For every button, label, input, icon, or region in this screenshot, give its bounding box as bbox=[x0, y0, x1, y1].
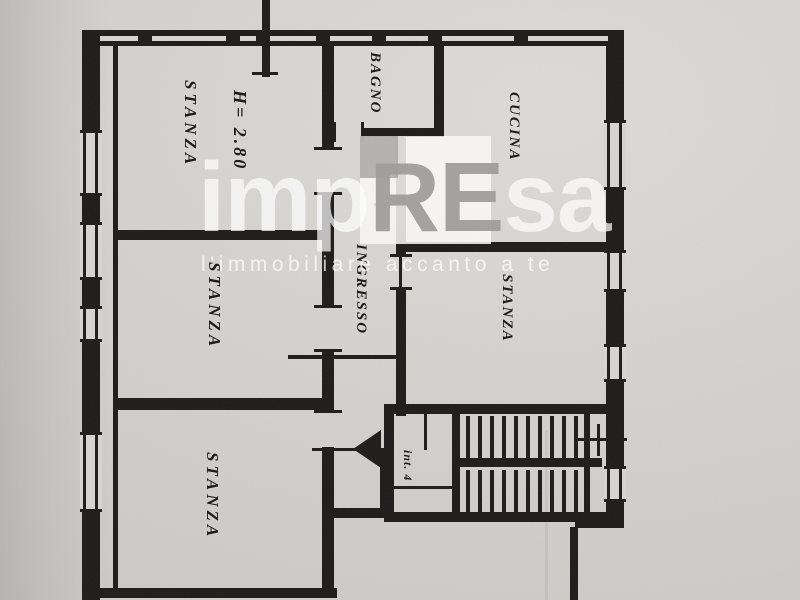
plan-line bbox=[80, 277, 102, 280]
plan-line bbox=[95, 225, 98, 277]
plan-line bbox=[514, 470, 518, 512]
plan-line bbox=[80, 509, 102, 512]
floor-plan bbox=[0, 0, 800, 600]
plan-line bbox=[466, 416, 470, 458]
plan-line bbox=[619, 347, 622, 379]
wall-segment bbox=[428, 30, 442, 46]
wall-segment bbox=[434, 46, 444, 134]
plan-line bbox=[80, 222, 102, 225]
plan-line bbox=[466, 470, 470, 512]
plan-line bbox=[83, 435, 86, 509]
plan-line bbox=[252, 72, 278, 75]
wall-segment bbox=[514, 30, 528, 46]
wall-segment bbox=[396, 290, 406, 416]
plan-line bbox=[490, 470, 494, 512]
room-label-stanza-bottom-left: STANZA bbox=[202, 452, 222, 540]
watermark-brand-prefix: imp bbox=[198, 142, 369, 252]
plan-line bbox=[619, 469, 622, 499]
plan-line bbox=[80, 130, 102, 133]
wall-segment bbox=[226, 30, 240, 46]
plan-line bbox=[83, 133, 86, 193]
window-opening bbox=[100, 36, 620, 41]
watermark-brand-highlight: RE bbox=[369, 142, 503, 252]
plan-line bbox=[478, 416, 482, 458]
plan-line bbox=[607, 469, 610, 499]
plan-line bbox=[80, 432, 102, 435]
plan-line bbox=[562, 470, 566, 512]
plan-line bbox=[502, 470, 506, 512]
plan-line bbox=[80, 306, 102, 309]
room-label-stanza-right: STANZA bbox=[498, 274, 515, 343]
plan-line bbox=[619, 123, 622, 187]
plan-line bbox=[314, 349, 342, 352]
plan-line bbox=[95, 309, 98, 339]
plan-line bbox=[562, 416, 566, 458]
watermark-brand: impREsa bbox=[198, 148, 610, 246]
wall-segment bbox=[113, 398, 330, 410]
wall-segment bbox=[372, 30, 386, 46]
plan-line bbox=[95, 133, 98, 193]
plan-line bbox=[604, 466, 626, 469]
plan-line bbox=[490, 416, 494, 458]
wall-segment bbox=[256, 30, 270, 46]
wall-segment bbox=[452, 458, 602, 467]
plan-line bbox=[314, 305, 342, 308]
plan-line bbox=[288, 355, 402, 359]
plan-line bbox=[95, 435, 98, 509]
wall-segment bbox=[384, 512, 624, 522]
plan-line bbox=[314, 410, 342, 413]
plan-line bbox=[83, 309, 86, 339]
entrance-arrow-icon bbox=[353, 430, 381, 468]
watermark-brand-suffix: sa bbox=[503, 142, 610, 252]
wall-segment bbox=[84, 588, 337, 598]
watermark-tagline: l'immobiliare accanto a te bbox=[201, 253, 554, 277]
wall-segment bbox=[113, 46, 118, 598]
wall-segment bbox=[570, 527, 578, 600]
plan-line bbox=[577, 438, 627, 441]
wall-segment bbox=[584, 414, 590, 512]
plan-line bbox=[607, 253, 610, 289]
plan-line bbox=[83, 225, 86, 277]
wall-segment bbox=[384, 404, 624, 414]
plan-line bbox=[574, 416, 578, 458]
plan-line bbox=[538, 470, 542, 512]
plan-line bbox=[604, 344, 626, 347]
plan-line bbox=[604, 499, 626, 502]
plan-line bbox=[392, 486, 454, 489]
plan-line bbox=[526, 416, 530, 458]
plan-line bbox=[550, 470, 554, 512]
wall-segment bbox=[138, 30, 152, 46]
plan-line bbox=[607, 347, 610, 379]
plan-line bbox=[80, 339, 102, 342]
stairwell-unit-note: int. 4 bbox=[400, 450, 415, 481]
wall-segment bbox=[316, 30, 330, 46]
wall-segment bbox=[380, 450, 390, 512]
plan-line bbox=[424, 412, 427, 450]
plan-line bbox=[550, 416, 554, 458]
plan-line bbox=[604, 289, 626, 292]
plan-line bbox=[574, 470, 578, 512]
room-label-bagno: BAGNO bbox=[366, 52, 383, 115]
floorplan-photo: STANZA H= 2.80 STANZA STANZA BAGNO CUCIN… bbox=[0, 0, 800, 600]
plan-line bbox=[526, 470, 530, 512]
wall-segment bbox=[608, 30, 622, 46]
plan-line bbox=[604, 379, 626, 382]
plan-line bbox=[604, 120, 626, 123]
plan-line bbox=[502, 416, 506, 458]
plan-line bbox=[478, 470, 482, 512]
wall-segment bbox=[84, 30, 98, 46]
room-label-stanza-top-left: STANZA bbox=[180, 80, 200, 168]
plan-line bbox=[80, 193, 102, 196]
plan-line bbox=[514, 416, 518, 458]
plan-line bbox=[538, 416, 542, 458]
plan-line bbox=[597, 424, 600, 456]
plan-line bbox=[619, 253, 622, 289]
plan-line bbox=[333, 122, 336, 142]
